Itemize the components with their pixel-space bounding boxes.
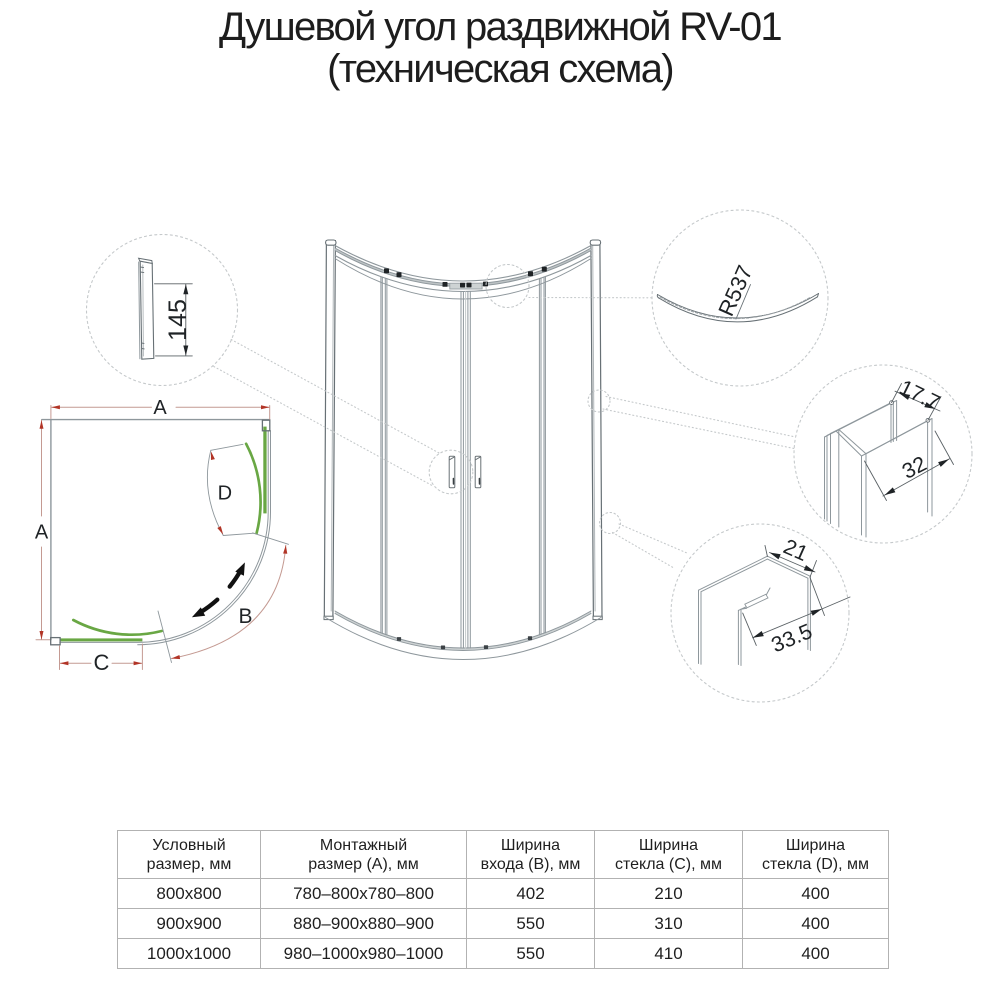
svg-text:21: 21	[780, 534, 812, 566]
svg-text:B: B	[238, 605, 252, 628]
svg-text:A: A	[35, 521, 49, 543]
svg-text:D: D	[218, 482, 232, 504]
svg-text:R537: R537	[713, 262, 757, 320]
svg-text:32: 32	[898, 452, 930, 484]
svg-text:145: 145	[164, 299, 192, 341]
svg-text:33.5: 33.5	[768, 619, 816, 657]
svg-text:C: C	[94, 650, 110, 675]
svg-text:A: A	[153, 397, 167, 419]
